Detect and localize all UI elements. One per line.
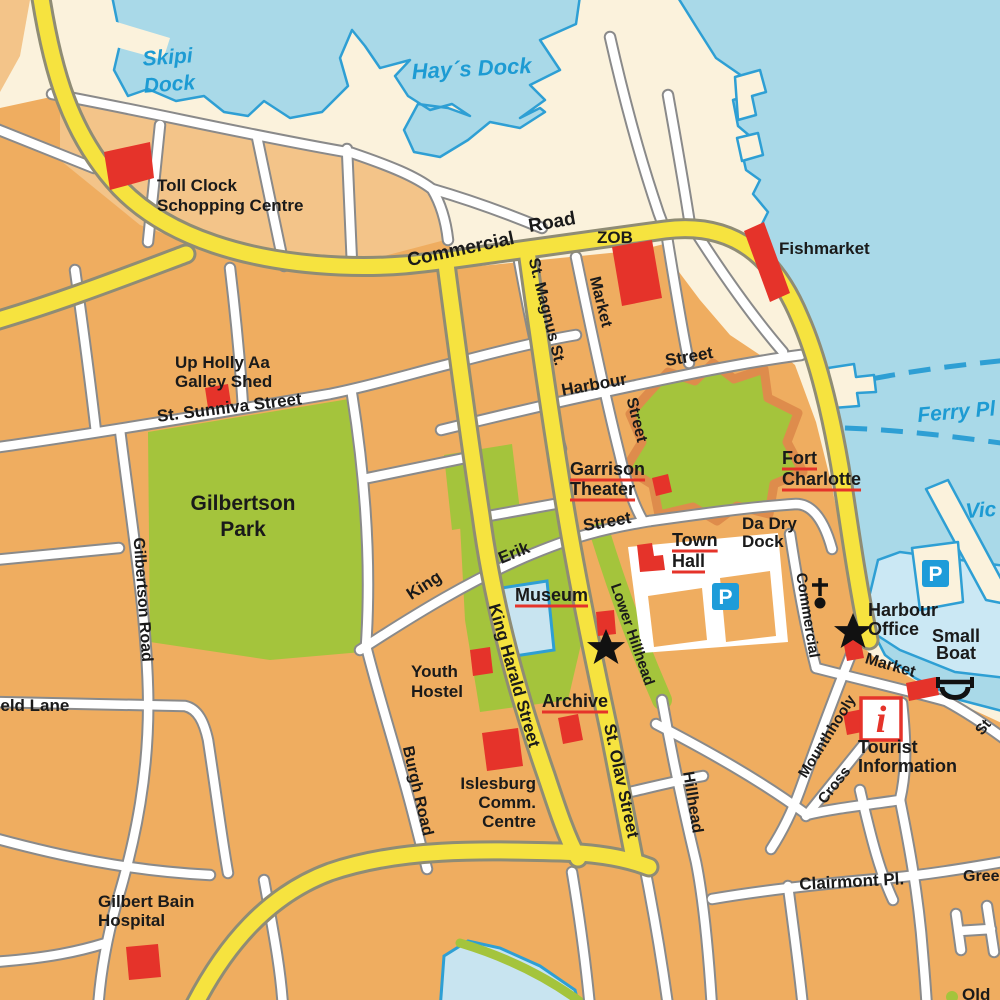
parking-icon: P (922, 560, 949, 587)
label-zob: ZOB (597, 228, 633, 247)
svg-text:i: i (876, 699, 887, 741)
label-field-lane: field Lane (0, 696, 69, 715)
parking-icon: P (712, 583, 739, 610)
label-victoria-pier: Vic (965, 498, 998, 523)
svg-text:Fishmarket: Fishmarket (779, 239, 870, 258)
label-garrison-theater: GarrisonTheater (570, 459, 645, 500)
svg-text:P: P (928, 563, 942, 586)
pier (737, 133, 763, 161)
youth-hostel-building (470, 647, 493, 676)
svg-text:Archive: Archive (542, 691, 608, 711)
label-youth-hostel: YouthHostel (411, 662, 463, 701)
svg-text:P: P (718, 586, 732, 609)
islesburg-building (482, 728, 523, 771)
label-archive: Archive (542, 691, 608, 712)
label-up-holly-aa: Up Holly AaGalley Shed (175, 353, 272, 391)
hospital-building (126, 944, 161, 980)
label-museum: Museum (515, 585, 588, 606)
label-fishmarket: Fishmarket (779, 239, 870, 258)
label-gree: Gree (963, 868, 1000, 885)
plaza-block (648, 588, 707, 647)
city-map[interactable]: P P i SkipiDockHay´s DockFerry PlVicComm… (0, 0, 1000, 1000)
svg-text:YouthHostel: YouthHostel (411, 662, 463, 701)
svg-text:field Lane: field Lane (0, 696, 69, 715)
svg-text:Vic: Vic (965, 498, 998, 523)
svg-text:Up Holly AaGalley Shed: Up Holly AaGalley Shed (175, 353, 272, 391)
svg-text:SmallBoat: SmallBoat (932, 626, 980, 663)
tourist-information-icon: i (861, 698, 901, 741)
svg-text:Museum: Museum (515, 585, 588, 605)
svg-text:Gree: Gree (963, 868, 1000, 885)
svg-text:ZOB: ZOB (597, 228, 633, 247)
label-small-boat: SmallBoat (932, 626, 980, 663)
svg-text:Old: Old (962, 985, 990, 1000)
label-old: Old (962, 985, 990, 1000)
